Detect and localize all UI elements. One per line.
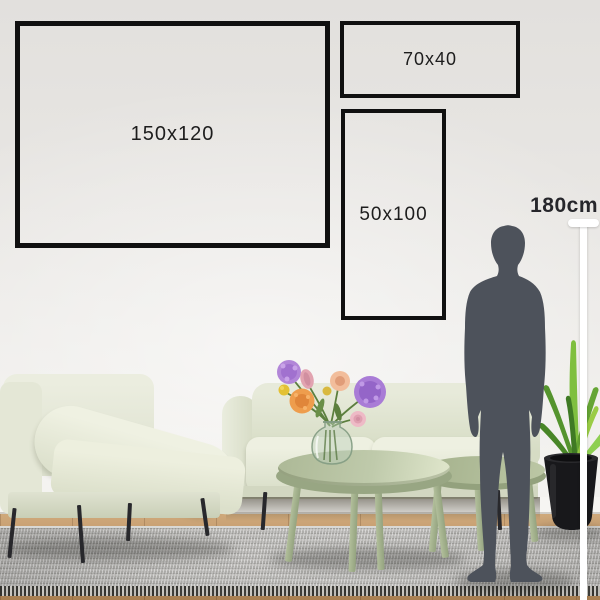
flower-yellow-bud <box>323 387 332 396</box>
height-measure-line <box>580 224 587 600</box>
table-shadow <box>270 548 465 570</box>
person-silhouette <box>462 224 562 584</box>
flower-allium-left <box>277 360 301 384</box>
flower-orange <box>290 389 315 414</box>
size-frame-150x120: 150x120 <box>15 21 330 248</box>
frame-size-label: 70x40 <box>403 49 457 70</box>
flower-allium-right <box>354 376 386 408</box>
size-frame-70x40: 70x40 <box>340 21 520 98</box>
size-frame-50x100: 50x100 <box>341 109 446 320</box>
measure-line-cap <box>568 219 599 227</box>
armchair-shadow <box>4 538 234 560</box>
height-label: 180cm <box>524 194 598 218</box>
flower-poppy-peach <box>330 371 350 391</box>
frame-size-label: 150x120 <box>131 123 215 146</box>
size-guide-image: 150x120 70x40 50x100 <box>0 0 600 600</box>
flower-rose-bud <box>350 411 366 427</box>
flower-billy-button <box>279 385 290 396</box>
flower-vase <box>262 352 397 468</box>
glass-vase <box>312 422 352 464</box>
frame-size-label: 50x100 <box>359 204 427 226</box>
